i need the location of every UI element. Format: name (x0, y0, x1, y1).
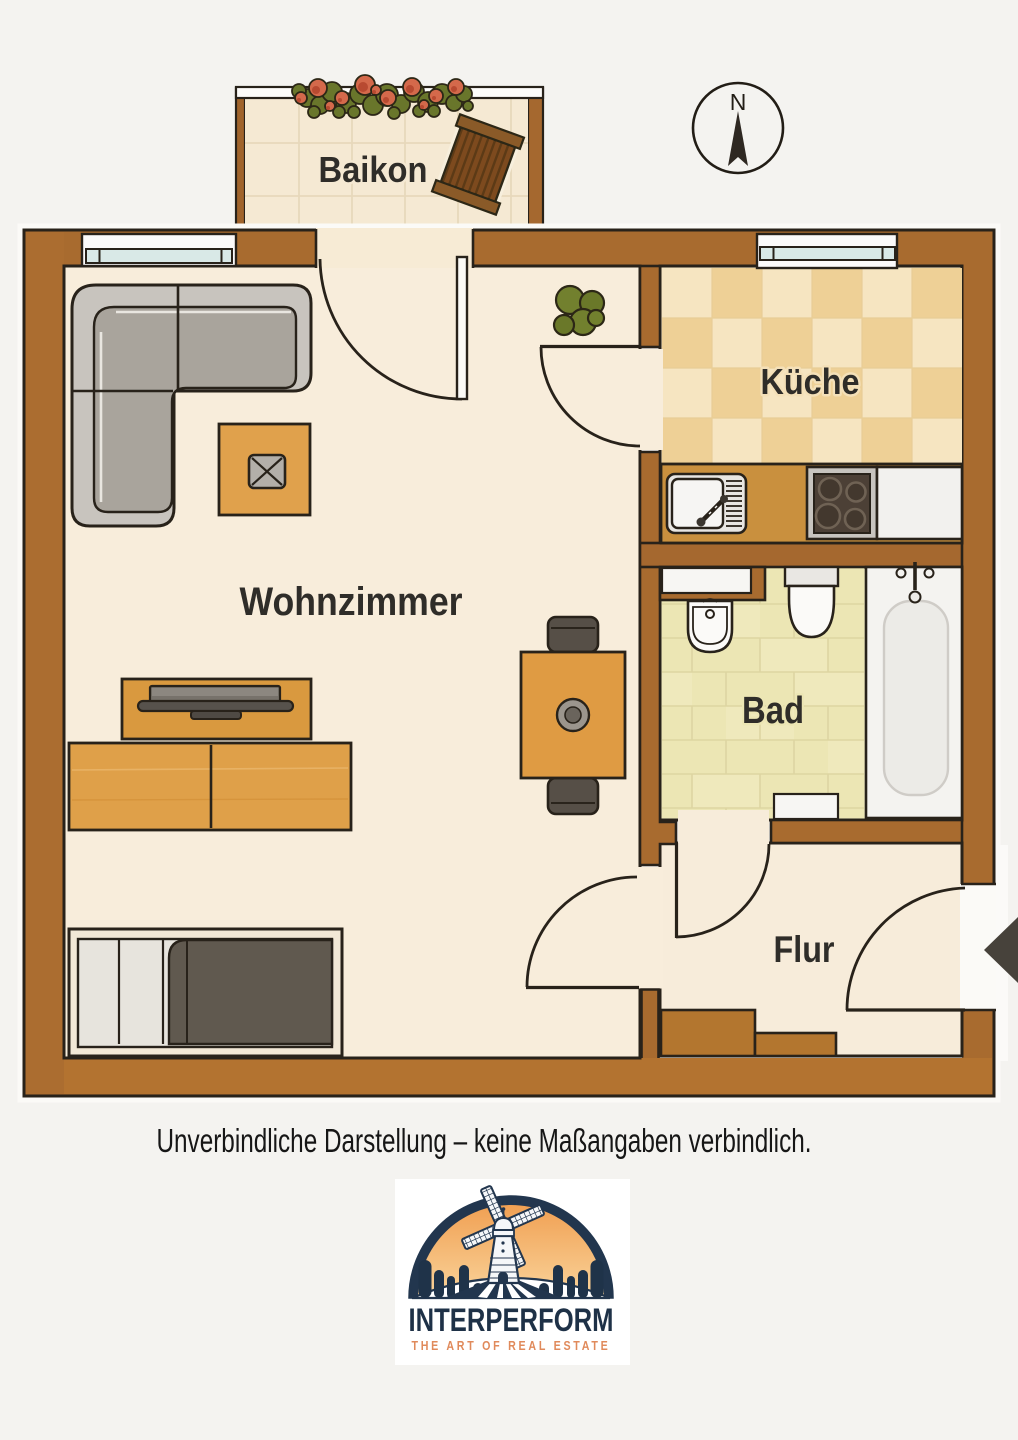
svg-text:Bad: Bad (742, 690, 804, 732)
svg-text:INTERPERFORM: INTERPERFORM (409, 1302, 614, 1338)
svg-text:Flur: Flur (774, 929, 835, 970)
svg-text:Wohnzimmer: Wohnzimmer (240, 580, 463, 624)
svg-text:Küche: Küche (761, 361, 860, 402)
svg-text:THE ART OF REAL ESTATE: THE ART OF REAL ESTATE (412, 1339, 611, 1353)
svg-text:Baikon: Baikon (319, 149, 428, 190)
svg-text:Unverbindliche Darstellung – k: Unverbindliche Darstellung – keine Maßan… (157, 1122, 812, 1159)
